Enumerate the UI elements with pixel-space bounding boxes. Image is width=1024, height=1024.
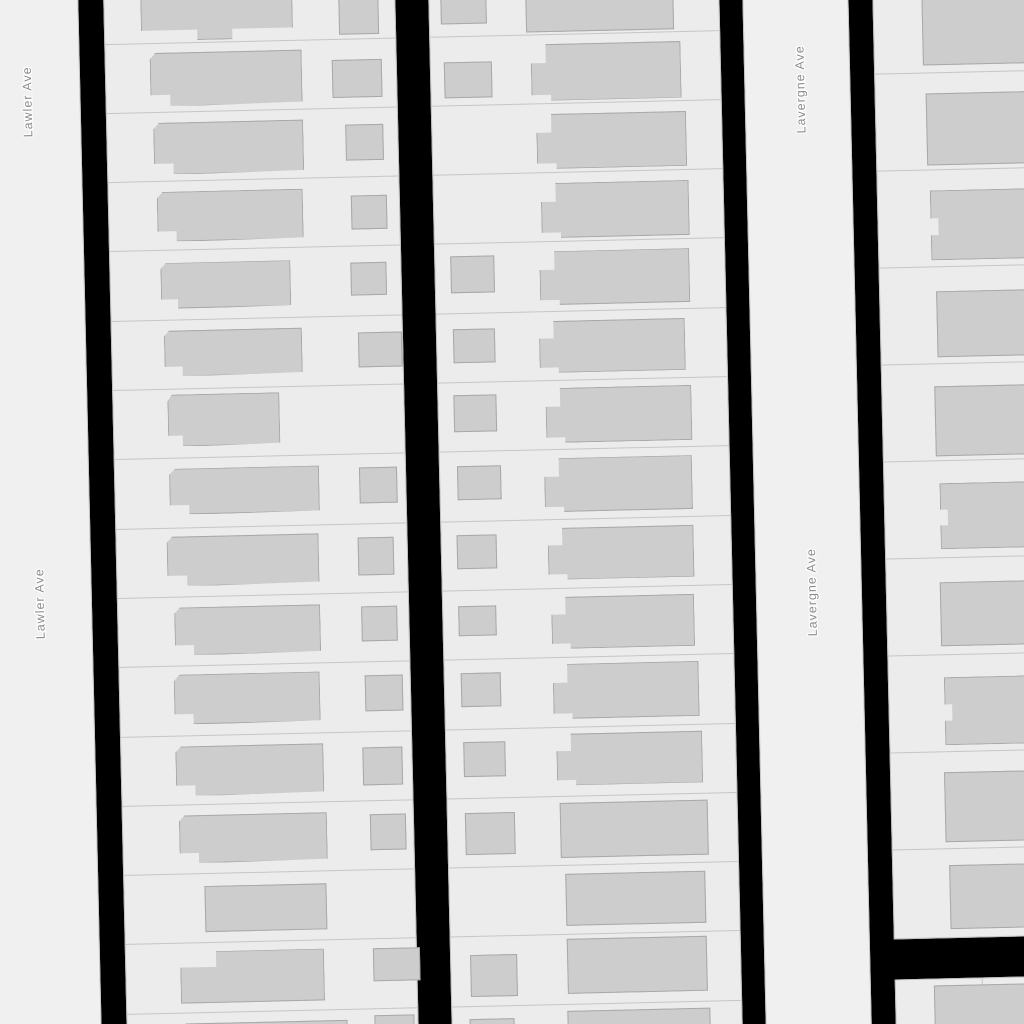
building-garage [470,954,518,997]
building-house [536,111,687,169]
building-garage [362,746,403,785]
building-house [169,466,320,515]
building-house [160,260,291,309]
building-house [940,579,1024,646]
building-house [949,862,1024,929]
building-house [934,982,1024,1024]
block-east-south [895,975,1024,1024]
building-house [552,661,699,719]
parcel-row [436,307,726,383]
building-house [936,288,1024,357]
building-house [939,480,1024,549]
building-house [944,674,1024,745]
building-garage [465,812,516,855]
parcel-row [449,861,739,937]
building-house [930,187,1024,260]
parcel-row [121,730,412,806]
parcel-row [105,37,396,113]
building-garage [350,262,387,296]
parcel-row [440,445,730,521]
building-garage [374,1014,415,1024]
parcel-row [875,70,1024,171]
building-house [547,524,694,579]
parcel-row [441,515,731,591]
building-house [539,248,690,305]
parcel-row [430,30,720,106]
street-lawler-ave: Lawler AveLawler Ave [0,0,103,1024]
building-garage [458,605,497,636]
building-house [565,871,706,926]
block-west [103,0,420,1024]
building-garage [453,328,496,363]
building-house [175,743,324,796]
building-garage [457,466,502,501]
building-house [944,769,1024,842]
parcel-row [451,930,741,1006]
parcel-row [446,722,736,798]
building-house [560,799,709,857]
building-house [556,730,703,785]
parcel-row [888,651,1024,752]
street-label-lavergne-ave: Lavergne Ave [804,548,820,637]
parcel-row [119,661,410,737]
building-garage [332,58,383,97]
parcel-row [108,176,399,252]
building-garage [457,534,498,569]
parcel-row [877,167,1024,268]
building-garage [469,1018,515,1024]
building-garage [461,672,502,707]
map-viewport[interactable]: Lawler AveLawler AveLavergne AveLavergne… [0,0,1024,1024]
building-garage [373,948,421,982]
building-house [934,383,1024,456]
building-house [186,1020,349,1024]
building-house [157,189,304,242]
building-garage [351,195,388,230]
building-garage [338,0,379,35]
building-house [174,604,321,655]
building-house [544,455,693,512]
parcel-row [872,0,1024,74]
parcel-row [884,458,1024,559]
building-house [164,327,303,376]
parcel-row [896,976,1024,1024]
parcel-row [444,653,734,729]
parcel-row [447,792,737,868]
street-label-lawler-ave: Lawler Ave [32,568,48,639]
block-east [871,0,1024,939]
parcel-row [110,245,401,321]
parcel-row [116,522,407,598]
building-house [174,672,321,725]
building-house [567,936,708,994]
parcel-row [880,264,1024,365]
building-house [179,812,328,863]
parcel-row [893,845,1024,940]
parcel-row [433,168,723,244]
map-scene: Lawler AveLawler AveLavergne AveLavergne… [0,0,1024,1024]
building-house [567,1007,711,1024]
street-label-lavergne-ave: Lavergne Ave [792,45,808,134]
building-garage [358,331,403,367]
parcel-row [443,584,733,660]
parcel-row [438,376,728,452]
building-house [167,392,280,447]
building-garage [365,675,404,712]
building-house [204,883,327,932]
parcel-row [882,361,1024,462]
parcel-row [886,554,1024,655]
parcel-row [124,868,415,944]
parcel-row [435,238,725,314]
building-garage [444,61,493,98]
parcel-row [126,938,417,1014]
building-house [140,0,293,41]
building-garage [463,741,506,777]
building-house [545,385,692,443]
building-garage [440,0,487,24]
building-house [541,180,690,238]
building-garage [450,256,495,294]
building-house [551,594,695,649]
parcel-row [115,453,406,529]
building-house [539,318,686,373]
parcel-row [113,383,404,459]
building-garage [453,394,497,432]
building-house [921,0,1024,66]
building-house [149,49,302,106]
building-house [166,533,319,586]
building-house [530,41,681,101]
building-garage [345,124,384,161]
building-garage [359,467,398,504]
building-garage [370,813,407,850]
parcel-row [112,314,403,390]
building-house [153,119,304,174]
building-garage [358,536,395,575]
street-lavergne-ave: Lavergne AveLavergne Ave [741,0,872,1024]
parcel-row [123,799,414,875]
parcel-row [432,99,722,175]
parcel-row [107,106,398,182]
building-house [926,91,1024,166]
parcel-row [891,748,1024,849]
parcel-row [118,591,409,667]
street-label-lawler-ave: Lawler Ave [20,66,36,137]
block-central [427,0,743,1024]
building-house [180,949,325,1004]
building-garage [361,606,398,642]
building-house [524,0,674,33]
